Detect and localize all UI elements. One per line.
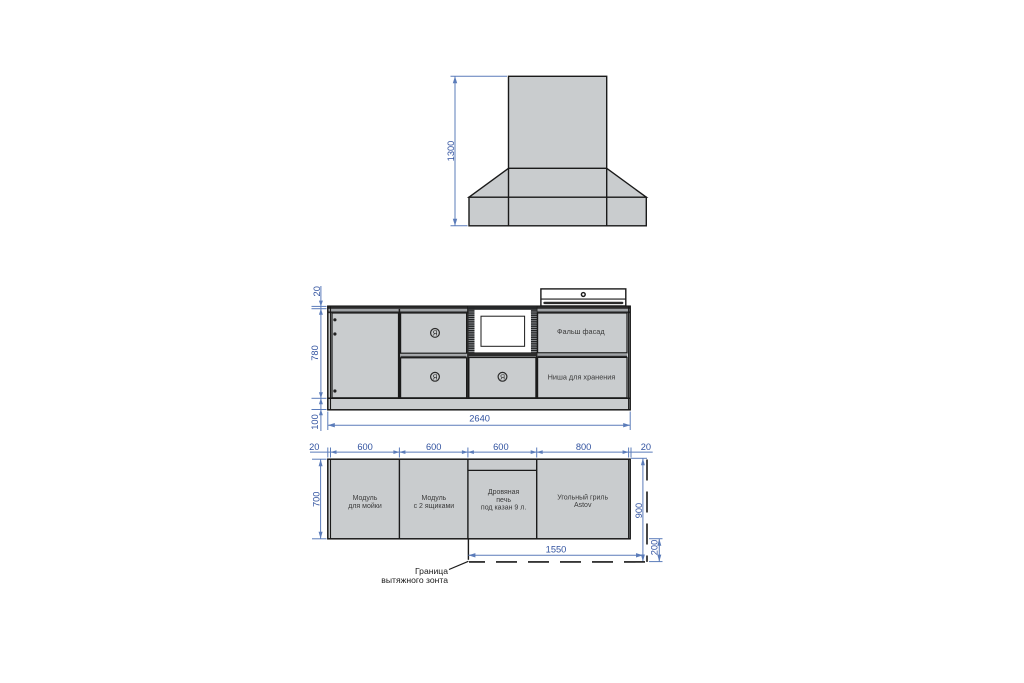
- svg-text:20: 20: [312, 286, 322, 296]
- svg-text:2640: 2640: [469, 414, 490, 424]
- svg-text:Astov: Astov: [574, 502, 592, 509]
- svg-text:Модуль: Модуль: [421, 495, 446, 502]
- svg-text:100: 100: [310, 414, 320, 430]
- svg-text:Фальш фасад: Фальш фасад: [557, 327, 605, 336]
- svg-text:700: 700: [312, 492, 322, 508]
- svg-text:с 2 ящиками: с 2 ящиками: [414, 503, 455, 510]
- svg-text:1300: 1300: [446, 141, 456, 162]
- svg-text:для мойки: для мойки: [348, 502, 382, 510]
- svg-text:20: 20: [641, 442, 651, 452]
- svg-text:под казан 9 л.: под казан 9 л.: [481, 505, 526, 512]
- svg-text:Угольный гриль: Угольный гриль: [557, 493, 608, 501]
- svg-text:600: 600: [426, 442, 442, 452]
- svg-text:900: 900: [634, 503, 644, 519]
- svg-text:800: 800: [576, 442, 592, 452]
- svg-text:Дровяная: Дровяная: [488, 489, 520, 496]
- svg-text:Ниша для хранения: Ниша для хранения: [548, 373, 616, 382]
- svg-text:600: 600: [493, 442, 509, 452]
- svg-text:вытяжного зонта: вытяжного зонта: [381, 575, 448, 585]
- svg-text:200: 200: [649, 540, 659, 556]
- svg-text:Я: Я: [432, 374, 437, 381]
- svg-text:1550: 1550: [546, 545, 567, 555]
- svg-text:780: 780: [310, 345, 320, 361]
- svg-text:Я: Я: [432, 330, 437, 337]
- svg-text:Я: Я: [500, 374, 505, 381]
- svg-text:600: 600: [357, 442, 373, 452]
- svg-text:печь: печь: [496, 497, 511, 504]
- svg-text:Модуль: Модуль: [353, 495, 378, 502]
- svg-text:20: 20: [309, 442, 319, 452]
